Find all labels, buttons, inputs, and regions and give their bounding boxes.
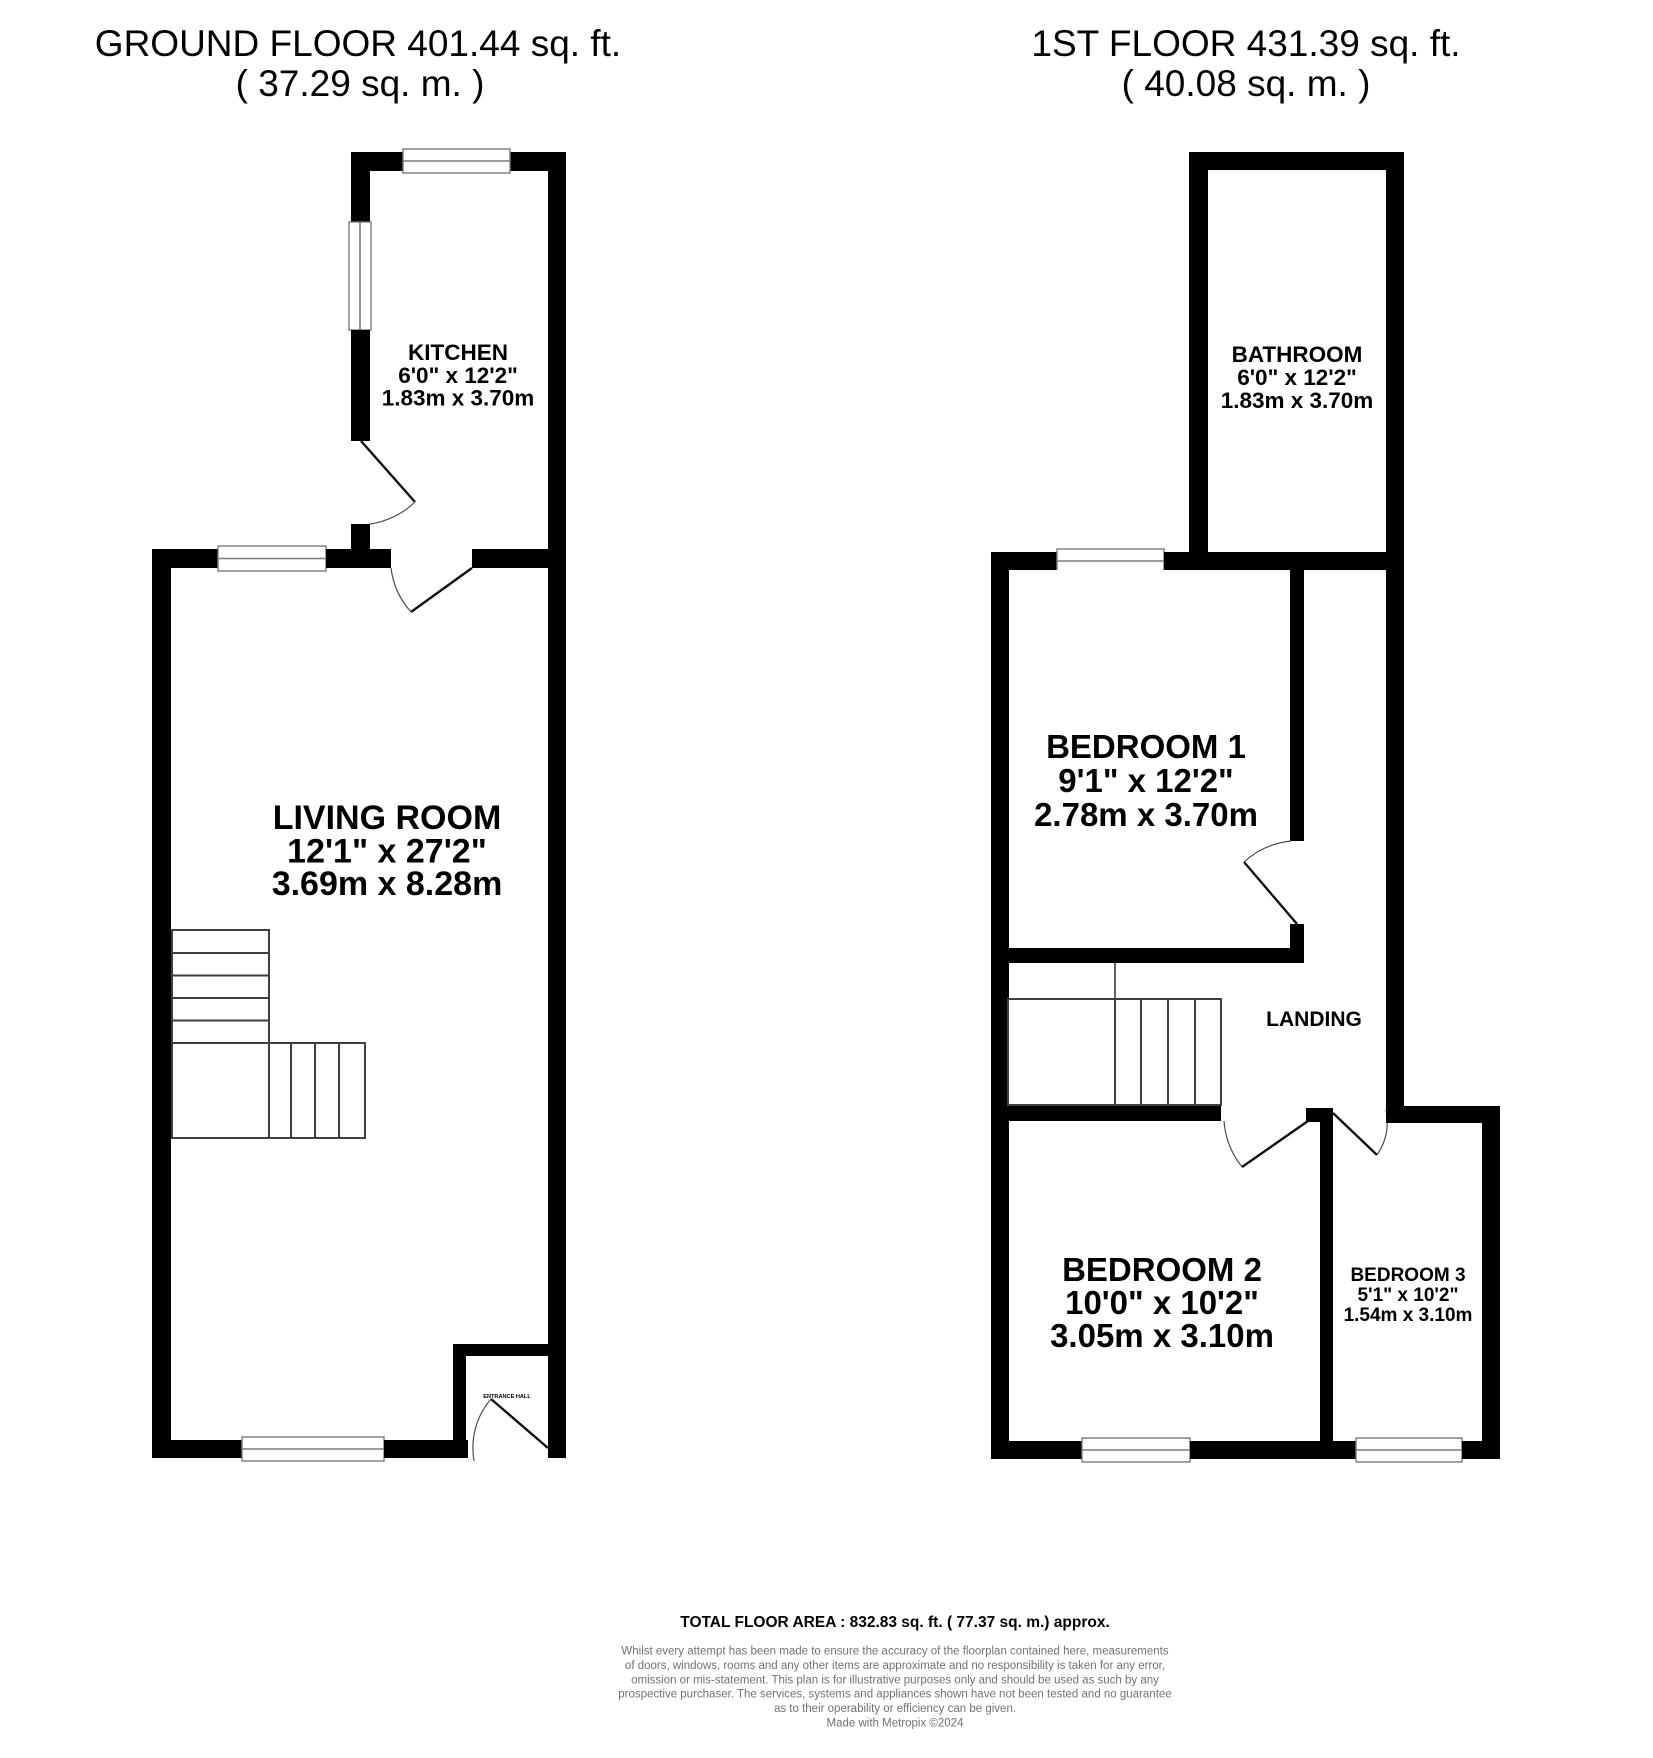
svg-text:3.69m x 8.28m: 3.69m x 8.28m (272, 865, 503, 903)
svg-text:TOTAL FLOOR AREA : 832.83 sq.: TOTAL FLOOR AREA : 832.83 sq. ft. ( 77.3… (680, 1614, 1110, 1631)
svg-text:5'1" x 10'2": 5'1" x 10'2" (1357, 1285, 1458, 1306)
svg-text:3.05m x 3.10m: 3.05m x 3.10m (1050, 1317, 1274, 1354)
svg-text:Whilst every attempt has been: Whilst every attempt has been made to en… (621, 1646, 1168, 1658)
svg-text:2.78m x 3.70m: 2.78m x 3.70m (1034, 796, 1258, 833)
svg-text:GROUND FLOOR 401.44 sq. ft.: GROUND FLOOR 401.44 sq. ft. (95, 23, 621, 64)
svg-text:( 40.08 sq. m. ): ( 40.08 sq. m. ) (1122, 63, 1371, 104)
svg-text:KITCHEN: KITCHEN (408, 340, 508, 365)
svg-text:omission or mis-statement. Thi: omission or mis-statement. This plan is … (631, 1674, 1159, 1686)
svg-text:LIVING ROOM: LIVING ROOM (273, 799, 502, 837)
svg-text:as to their operability or eff: as to their operability or efficiency ca… (774, 1703, 1016, 1715)
svg-text:1ST FLOOR 431.39 sq. ft.: 1ST FLOOR 431.39 sq. ft. (1031, 23, 1460, 64)
svg-text:ENTRANCE HALL: ENTRANCE HALL (483, 1394, 531, 1400)
svg-text:10'0" x 10'2": 10'0" x 10'2" (1065, 1284, 1259, 1321)
svg-text:1.83m x 3.70m: 1.83m x 3.70m (1221, 388, 1374, 413)
svg-text:BEDROOM 2: BEDROOM 2 (1062, 1251, 1262, 1288)
svg-text:1.54m x 3.10m: 1.54m x 3.10m (1344, 1305, 1473, 1326)
svg-text:BEDROOM 1: BEDROOM 1 (1046, 728, 1246, 765)
svg-text:LANDING: LANDING (1266, 1008, 1362, 1031)
svg-text:BATHROOM: BATHROOM (1232, 342, 1363, 367)
svg-text:BEDROOM 3: BEDROOM 3 (1350, 1265, 1465, 1286)
svg-text:Made with Metropix ©2024: Made with Metropix ©2024 (827, 1718, 965, 1730)
svg-text:1.83m x 3.70m: 1.83m x 3.70m (382, 386, 535, 411)
svg-text:prospective purchaser. The ser: prospective purchaser. The services, sys… (618, 1689, 1171, 1701)
svg-text:( 37.29 sq. m. ): ( 37.29 sq. m. ) (236, 63, 485, 104)
svg-text:of doors, windows, rooms and a: of doors, windows, rooms and any other i… (625, 1660, 1165, 1672)
svg-text:9'1" x 12'2": 9'1" x 12'2" (1058, 762, 1233, 799)
svg-text:6'0" x 12'2": 6'0" x 12'2" (1237, 365, 1357, 390)
svg-text:6'0" x 12'2": 6'0" x 12'2" (398, 363, 518, 388)
